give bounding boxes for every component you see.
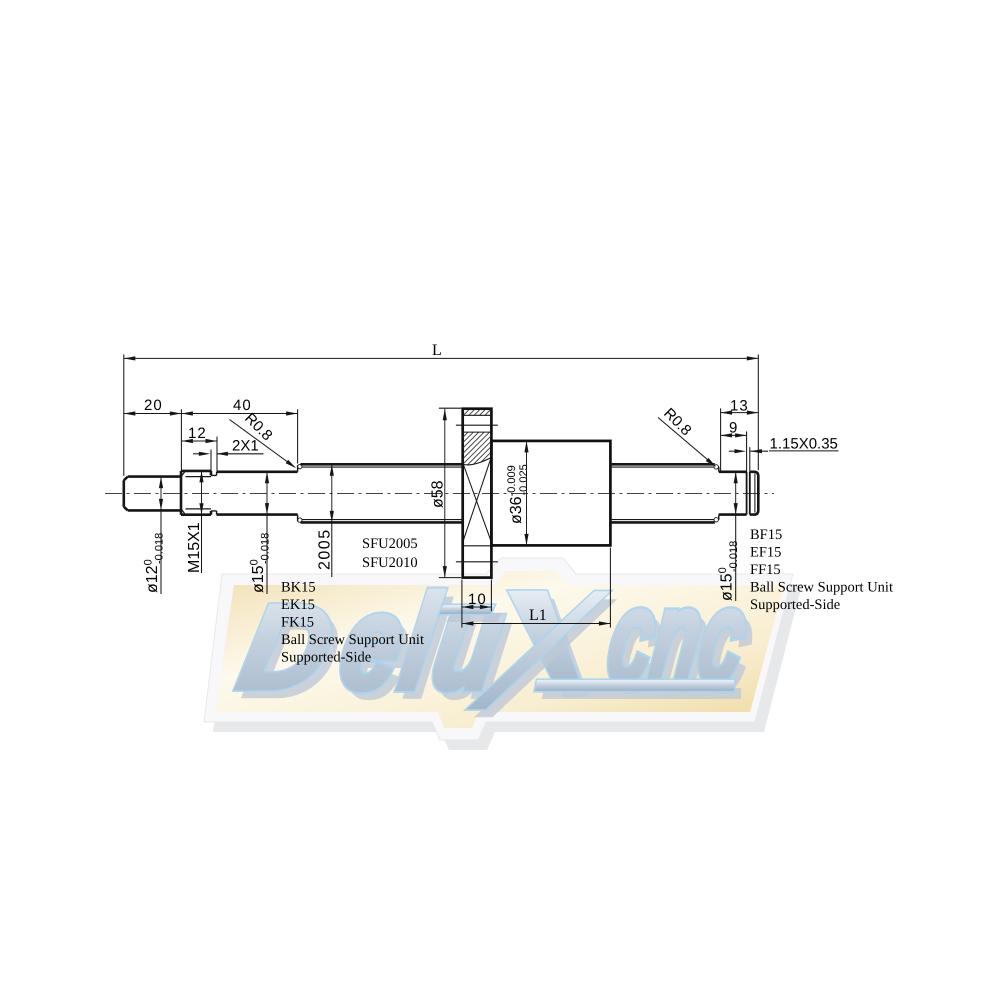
svg-text:M15X1: M15X1 <box>186 522 203 573</box>
svg-text:40: 40 <box>233 397 252 414</box>
svg-text:FF15: FF15 <box>750 562 781 578</box>
svg-text:12: 12 <box>188 425 207 442</box>
svg-text:SFU2010: SFU2010 <box>362 555 418 571</box>
svg-text:ø58: ø58 <box>429 480 446 508</box>
svg-text:2005: 2005 <box>316 528 333 570</box>
svg-text:9: 9 <box>729 419 737 436</box>
svg-text:2X1: 2X1 <box>232 438 259 455</box>
svg-text:20: 20 <box>144 397 163 414</box>
svg-text:L: L <box>432 342 442 359</box>
svg-text:BF15: BF15 <box>750 527 782 543</box>
svg-text:Supported-Side: Supported-Side <box>281 650 371 666</box>
svg-text:10: 10 <box>468 591 487 608</box>
svg-text:SFU2005: SFU2005 <box>362 536 418 552</box>
svg-text:13: 13 <box>730 398 749 415</box>
svg-text:Ball Screw Support Unit: Ball Screw Support Unit <box>750 580 893 596</box>
svg-text:Supported-Side: Supported-Side <box>750 597 840 613</box>
svg-text:FK15: FK15 <box>281 615 314 631</box>
svg-text:1.15X0.35: 1.15X0.35 <box>770 436 838 453</box>
svg-text:EK15: EK15 <box>281 597 315 613</box>
svg-text:L1: L1 <box>529 607 547 624</box>
svg-text:EF15: EF15 <box>750 545 781 561</box>
svg-text:Ball Screw Support Unit: Ball Screw Support Unit <box>281 632 424 648</box>
svg-text:BK15: BK15 <box>281 580 316 596</box>
